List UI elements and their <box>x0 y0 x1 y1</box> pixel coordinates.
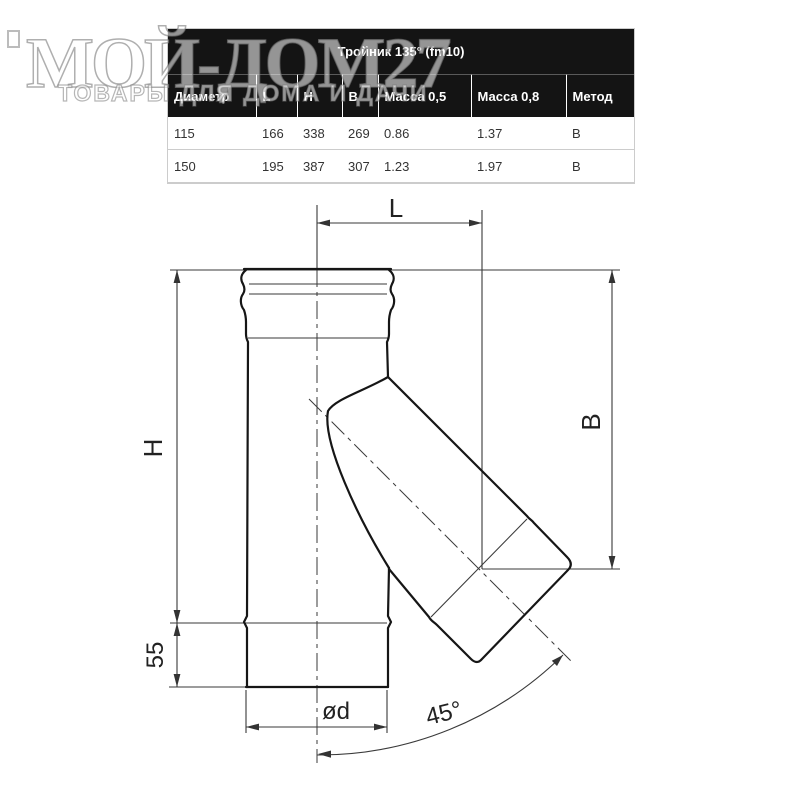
col-header-mass08: Масса 0,8 <box>471 75 566 118</box>
label-H: H <box>138 439 168 458</box>
cell-H: 387 <box>297 150 342 183</box>
cell-diameter: 115 <box>168 117 256 150</box>
col-header-mass05: Масса 0,5 <box>378 75 471 118</box>
table-row: 150 195 387 307 1.23 1.97 В <box>168 150 634 183</box>
table-row: 115 166 338 269 0.86 1.37 В <box>168 117 634 150</box>
center-lines <box>309 269 571 763</box>
col-header-method: Метод <box>566 75 634 118</box>
cell-L: 166 <box>256 117 297 150</box>
watermark-logo-mark <box>7 30 20 48</box>
col-header-B: В <box>342 75 378 118</box>
cell-mass05: 0.86 <box>378 117 471 150</box>
table-header-row: Диаметр L Н В Масса 0,5 Масса 0,8 Метод <box>168 75 634 118</box>
cell-B: 269 <box>342 117 378 150</box>
cell-B: 307 <box>342 150 378 183</box>
cell-method: В <box>566 117 634 150</box>
cell-diameter: 150 <box>168 150 256 183</box>
label-diameter: ød <box>322 698 350 725</box>
cell-mass08: 1.97 <box>471 150 566 183</box>
product-spec-image: L H B 55 ød 45° Тройник 135° (fm10) Диам… <box>0 0 796 796</box>
col-header-diameter: Диаметр <box>168 75 256 118</box>
spec-table: Тройник 135° (fm10) Диаметр L Н В Масса … <box>167 28 635 184</box>
cell-L: 195 <box>256 150 297 183</box>
cell-H: 338 <box>297 117 342 150</box>
label-55: 55 <box>142 642 169 669</box>
label-L: L <box>389 193 403 223</box>
dimension-lines <box>169 205 620 755</box>
cell-mass08: 1.37 <box>471 117 566 150</box>
cell-method: В <box>566 150 634 183</box>
table-title: Тройник 135° (fm10) <box>168 29 634 75</box>
col-header-L: L <box>256 75 297 118</box>
tee-pipe-outline <box>241 269 571 687</box>
label-B: B <box>576 413 606 430</box>
cell-mass05: 1.23 <box>378 150 471 183</box>
col-header-H: Н <box>297 75 342 118</box>
